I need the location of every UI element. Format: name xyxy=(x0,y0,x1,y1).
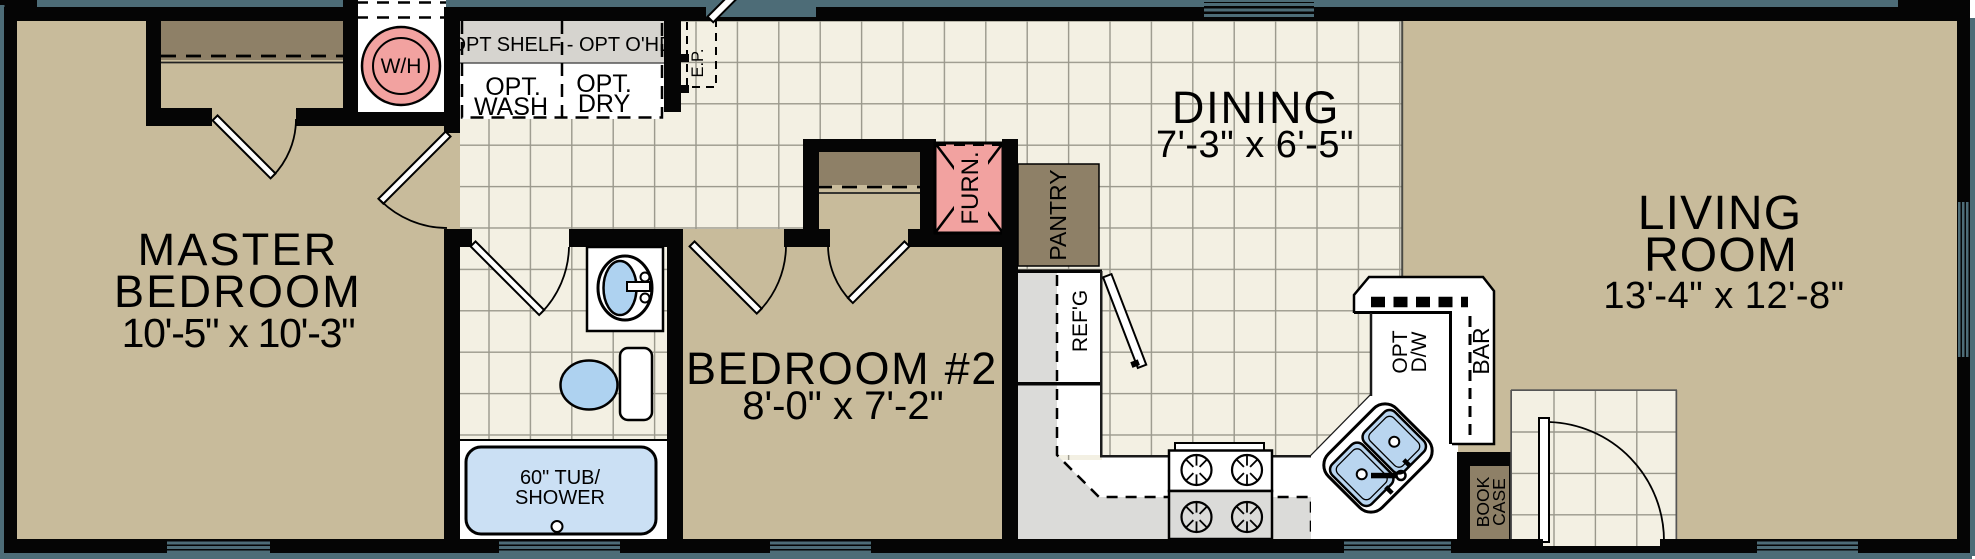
svg-text:W/H: W/H xyxy=(381,55,422,78)
svg-text:CASE: CASE xyxy=(1489,478,1509,526)
svg-text:13'-4" x 12'-8": 13'-4" x 12'-8" xyxy=(1603,275,1844,317)
svg-text:FURN.: FURN. xyxy=(957,151,984,224)
svg-text:E.P.: E.P. xyxy=(689,48,707,77)
svg-text:BAR: BAR xyxy=(1468,327,1494,374)
svg-text:7'-3" x 6'-5": 7'-3" x 6'-5" xyxy=(1156,124,1354,166)
svg-text:PANTRY: PANTRY xyxy=(1045,169,1071,260)
svg-text:WASH: WASH xyxy=(474,93,548,121)
svg-text:10'-5" x 10'-3": 10'-5" x 10'-3" xyxy=(122,310,355,356)
svg-text:REF'G: REF'G xyxy=(1069,290,1092,352)
svg-text:DRY: DRY xyxy=(578,90,631,118)
svg-text:8'-0" x 7'-2": 8'-0" x 7'-2" xyxy=(742,384,944,428)
svg-text:60" TUB/: 60" TUB/ xyxy=(520,467,601,489)
svg-text:SHOWER: SHOWER xyxy=(515,487,605,509)
svg-text:D/W: D/W xyxy=(1408,331,1431,372)
